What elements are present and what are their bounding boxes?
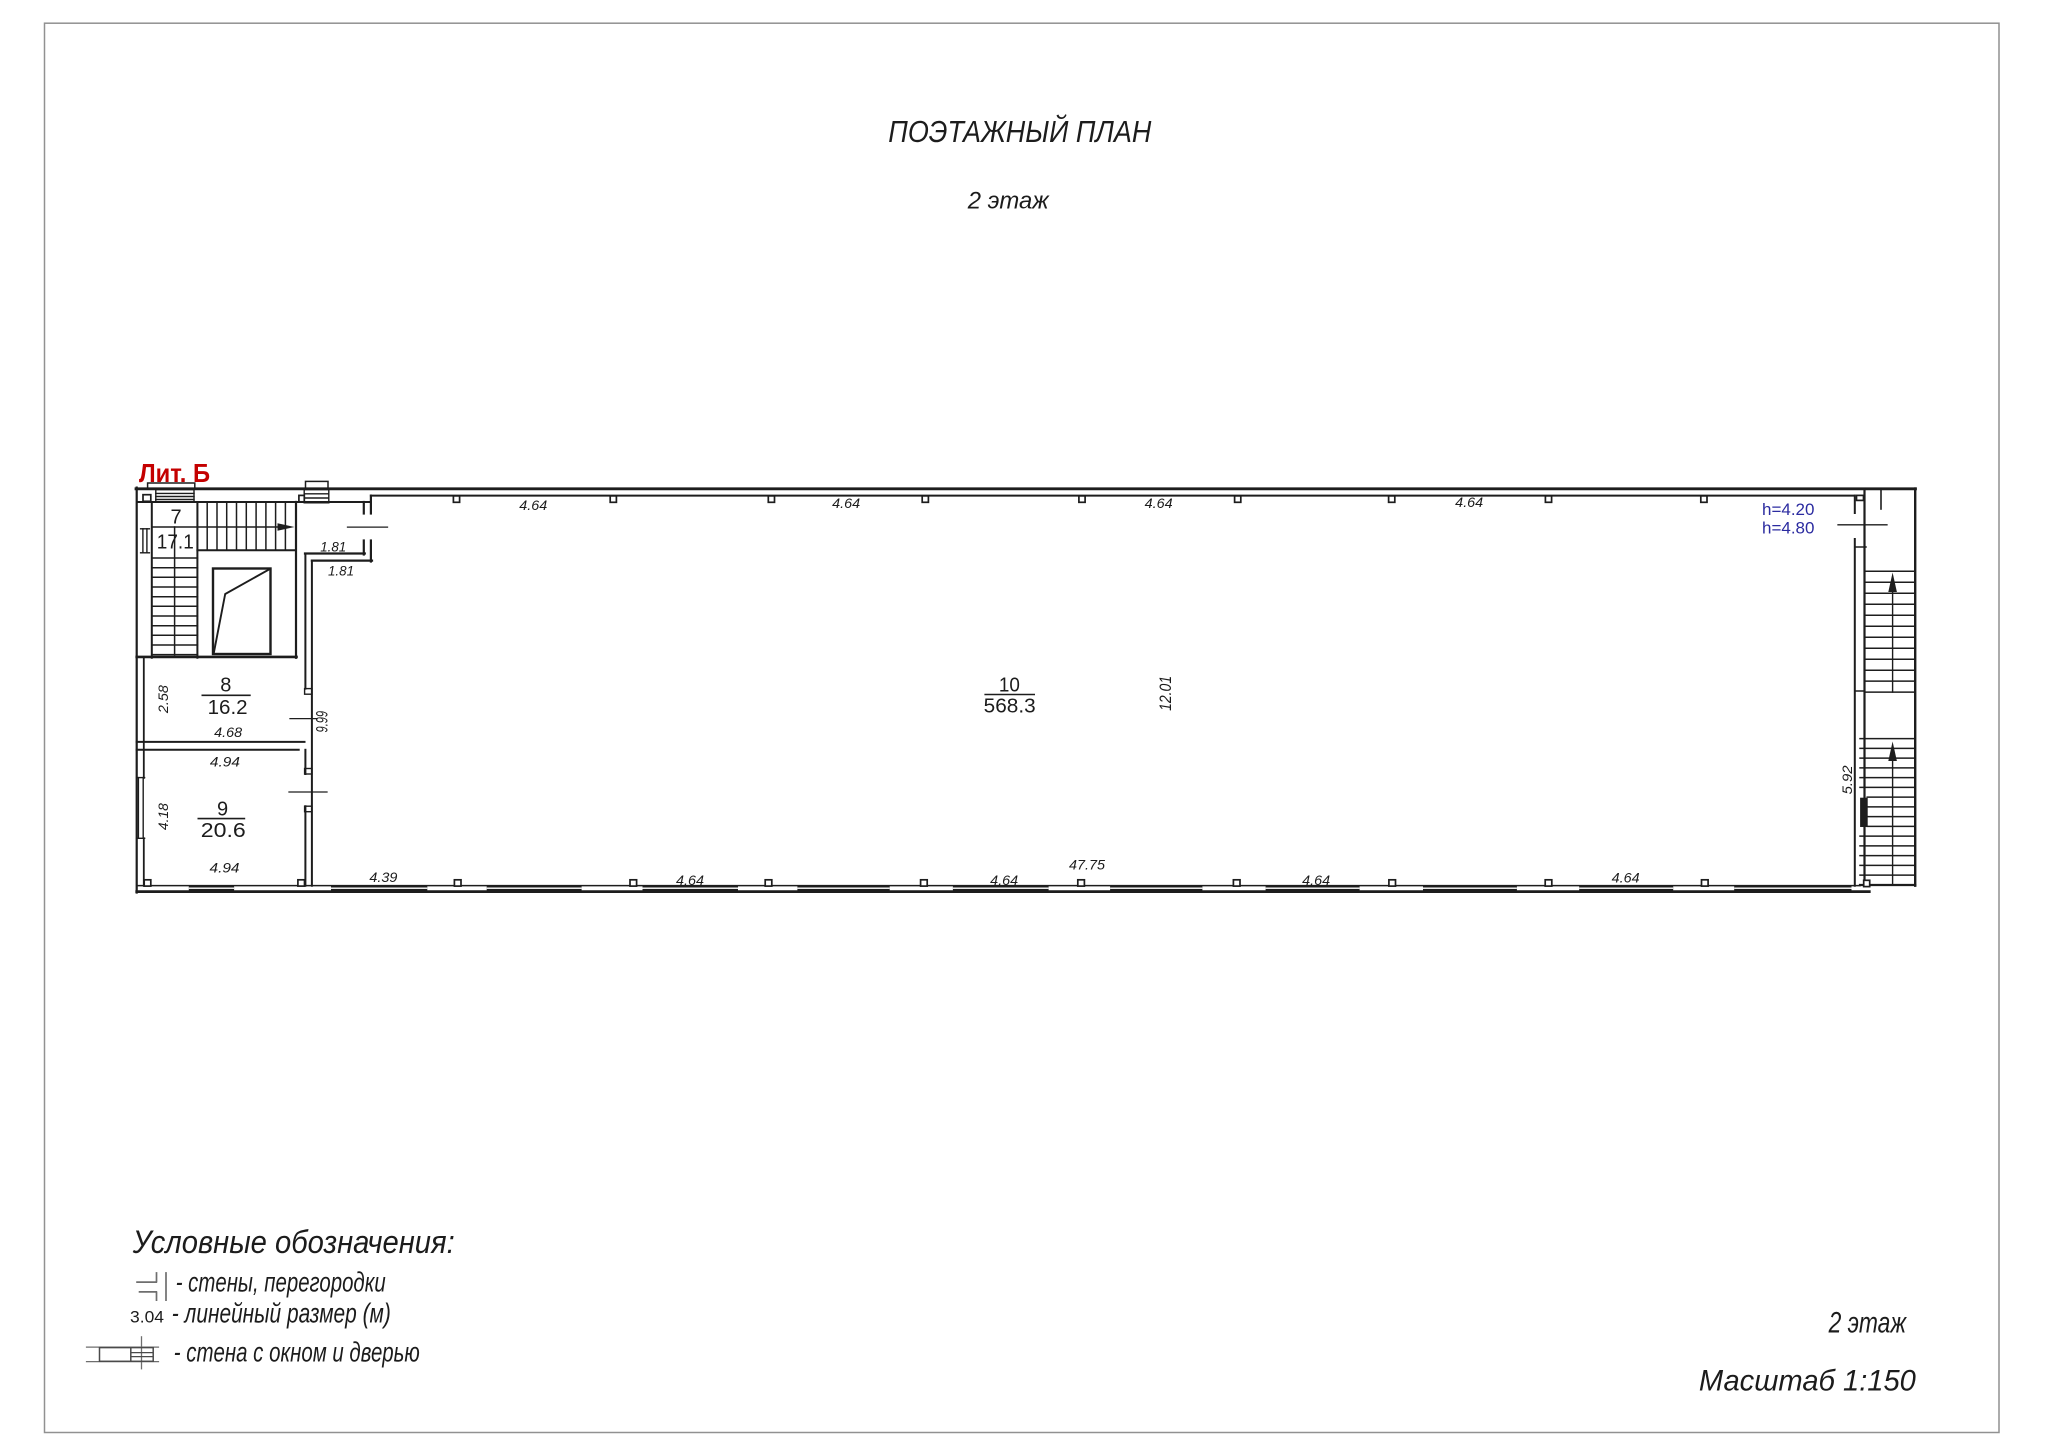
svg-text:2 этаж: 2 этаж bbox=[1828, 1307, 1907, 1340]
svg-text:4.64: 4.64 bbox=[832, 495, 860, 511]
svg-text:10: 10 bbox=[999, 675, 1020, 697]
svg-text:4.64: 4.64 bbox=[1612, 870, 1640, 886]
svg-text:1.81: 1.81 bbox=[328, 562, 354, 578]
svg-text:Масштаб 1:150: Масштаб 1:150 bbox=[1699, 1365, 1916, 1398]
svg-text:4.64: 4.64 bbox=[519, 497, 547, 513]
svg-text:20.6: 20.6 bbox=[201, 820, 246, 842]
svg-text:8: 8 bbox=[220, 675, 231, 697]
svg-text:12.01: 12.01 bbox=[1156, 676, 1175, 711]
svg-text:568.3: 568.3 bbox=[984, 696, 1036, 718]
svg-text:4.64: 4.64 bbox=[676, 872, 704, 888]
svg-text:16.2: 16.2 bbox=[208, 697, 248, 719]
svg-text:17.1: 17.1 bbox=[157, 532, 194, 554]
svg-text:1.81: 1.81 bbox=[320, 538, 346, 554]
svg-text:- стены, перегородки: - стены, перегородки bbox=[176, 1267, 386, 1298]
svg-text:2.58: 2.58 bbox=[155, 685, 171, 714]
svg-text:4.94: 4.94 bbox=[210, 860, 240, 876]
svg-text:2 этаж: 2 этаж bbox=[967, 188, 1050, 215]
svg-text:h=4.20: h=4.20 bbox=[1762, 500, 1814, 519]
svg-text:4.64: 4.64 bbox=[1145, 495, 1173, 511]
svg-text:- линейный размер (м): - линейный размер (м) bbox=[172, 1298, 391, 1329]
svg-text:4.64: 4.64 bbox=[1302, 872, 1330, 888]
svg-text:9: 9 bbox=[217, 799, 228, 821]
svg-text:Условные обозначения:: Условные обозначения: bbox=[132, 1224, 455, 1260]
svg-text:4.94: 4.94 bbox=[210, 753, 240, 769]
svg-text:4.39: 4.39 bbox=[369, 869, 397, 885]
svg-text:4.64: 4.64 bbox=[1455, 494, 1483, 510]
svg-text:47.75: 47.75 bbox=[1069, 857, 1105, 873]
svg-text:4.64: 4.64 bbox=[990, 872, 1018, 888]
svg-text:4.18: 4.18 bbox=[155, 803, 171, 830]
svg-text:h=4.80: h=4.80 bbox=[1762, 518, 1814, 537]
svg-text:4.68: 4.68 bbox=[214, 724, 242, 740]
svg-text:7: 7 bbox=[170, 507, 181, 529]
svg-text:5.92: 5.92 bbox=[1839, 765, 1855, 794]
svg-text:3.04: 3.04 bbox=[130, 1308, 164, 1327]
svg-text:9.99: 9.99 bbox=[313, 711, 331, 733]
svg-text:- стена с окном и дверью: - стена с окном и дверью bbox=[174, 1337, 420, 1368]
svg-text:ПОЭТАЖНЫЙ ПЛАН: ПОЭТАЖНЫЙ ПЛАН bbox=[888, 113, 1152, 149]
